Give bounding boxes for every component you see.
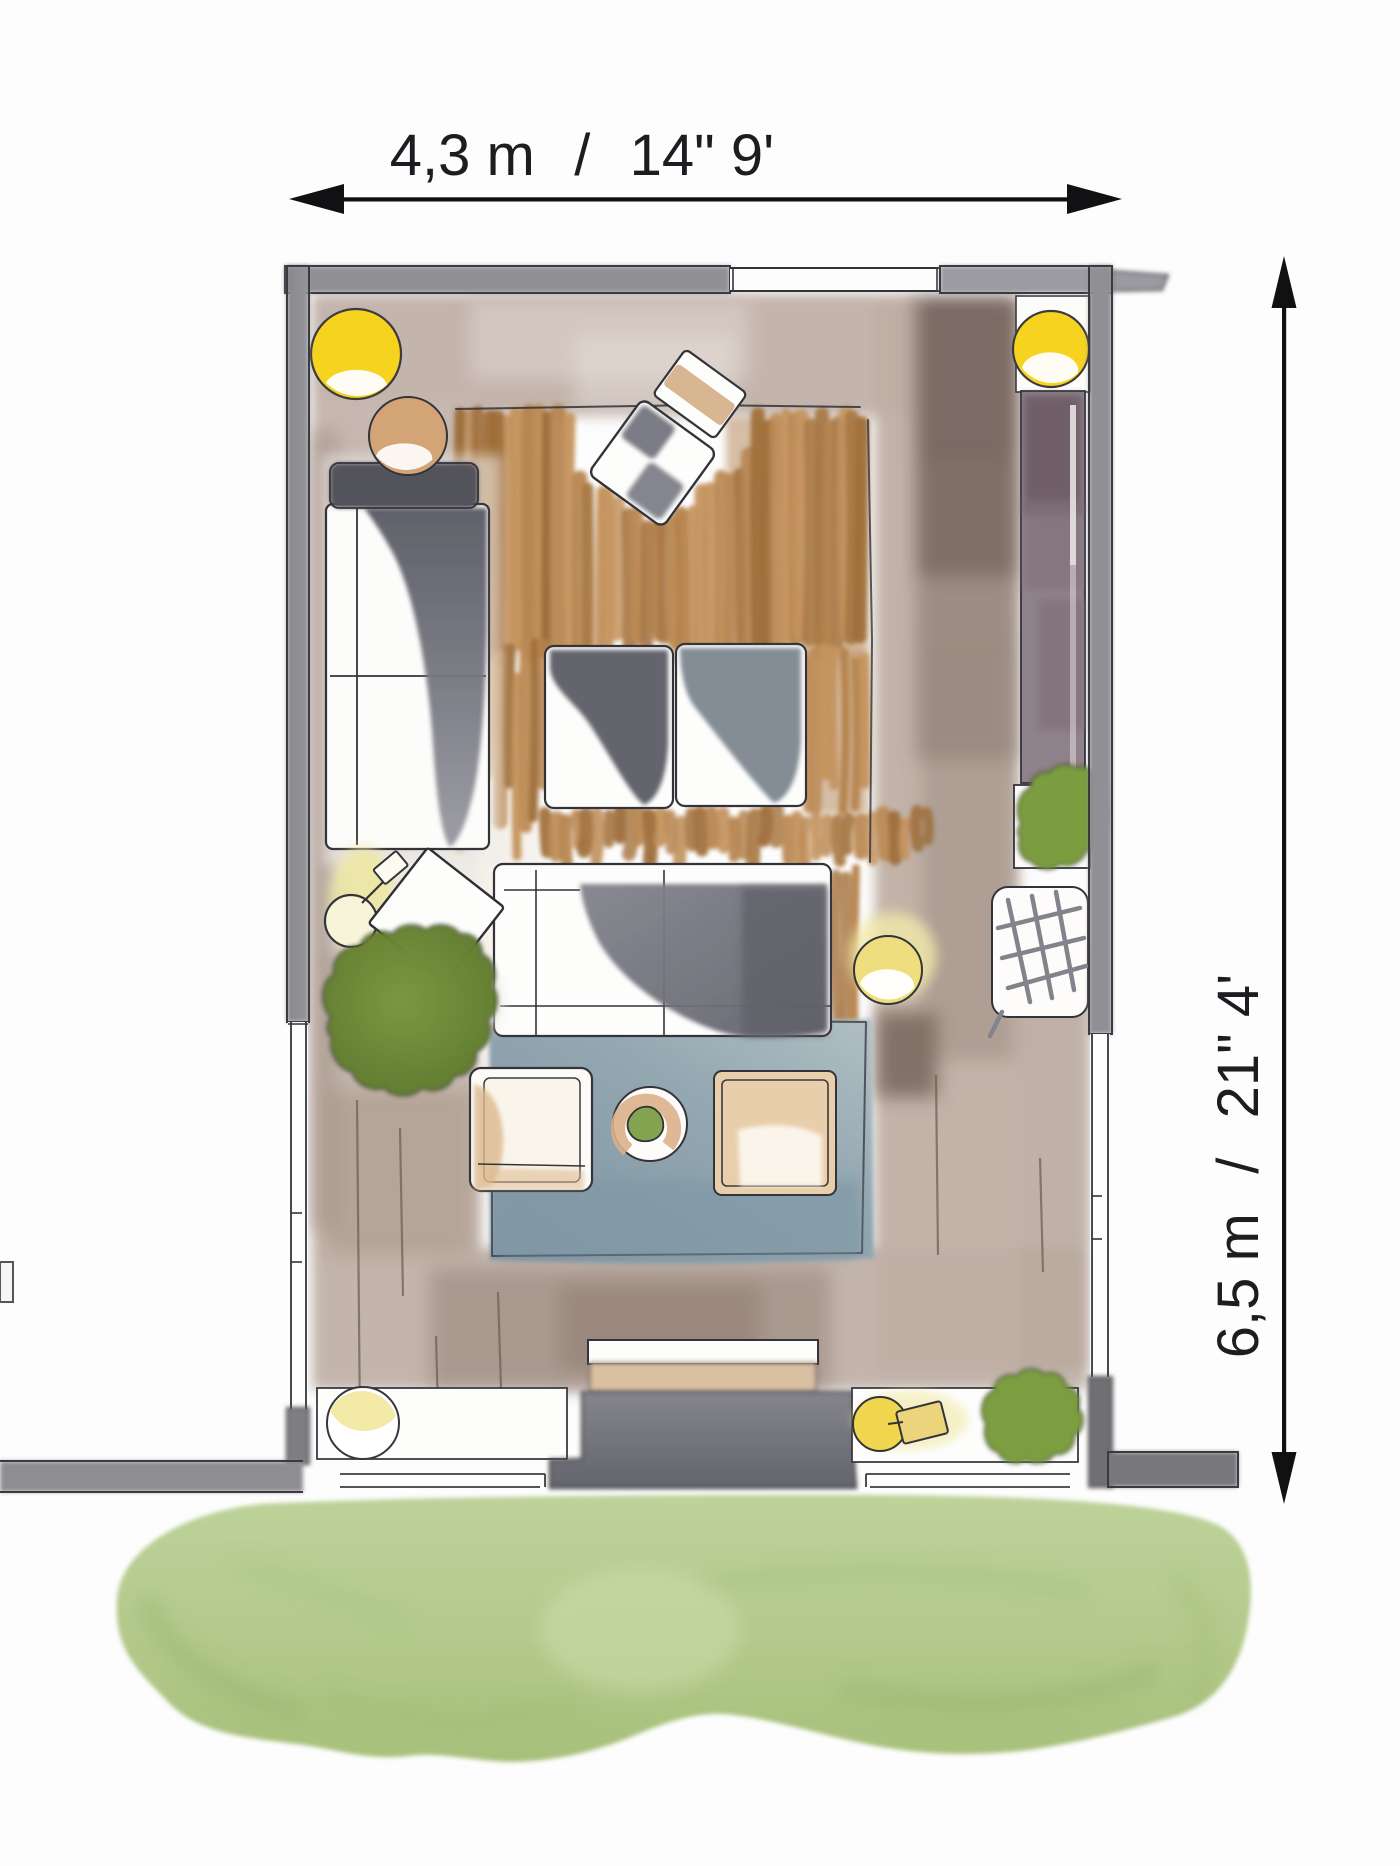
svg-text:6,5 m / 21" 4': 6,5 m / 21" 4' — [1206, 974, 1271, 1358]
svg-text:4,3 m / 14" 9': 4,3 m / 14" 9' — [390, 123, 774, 188]
